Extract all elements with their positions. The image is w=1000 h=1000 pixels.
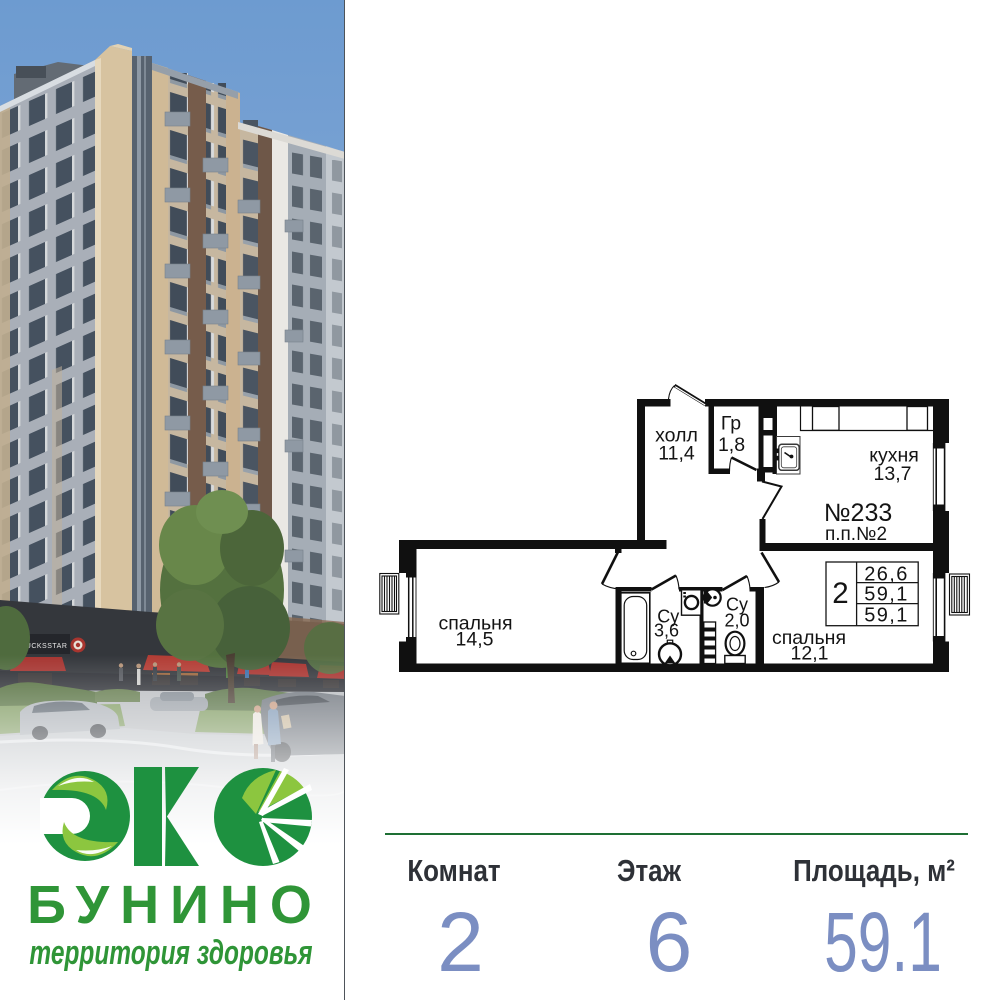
svg-text:13,7: 13,7: [874, 463, 912, 485]
svg-text:№233: №233: [824, 499, 893, 527]
svg-text:Гр: Гр: [721, 413, 741, 435]
svg-text:59,1: 59,1: [864, 605, 909, 627]
svg-text:14,5: 14,5: [456, 629, 494, 651]
svg-text:26,6: 26,6: [864, 564, 909, 586]
svg-text:п.п.№2: п.п.№2: [825, 524, 887, 545]
svg-text:11,4: 11,4: [658, 443, 695, 465]
svg-text:2: 2: [832, 577, 848, 610]
svg-text:2,0: 2,0: [724, 611, 749, 631]
svg-text:1,8: 1,8: [718, 434, 745, 456]
svg-text:12,1: 12,1: [791, 643, 829, 665]
svg-text:59,1: 59,1: [864, 584, 909, 606]
svg-text:3,6: 3,6: [654, 621, 679, 641]
